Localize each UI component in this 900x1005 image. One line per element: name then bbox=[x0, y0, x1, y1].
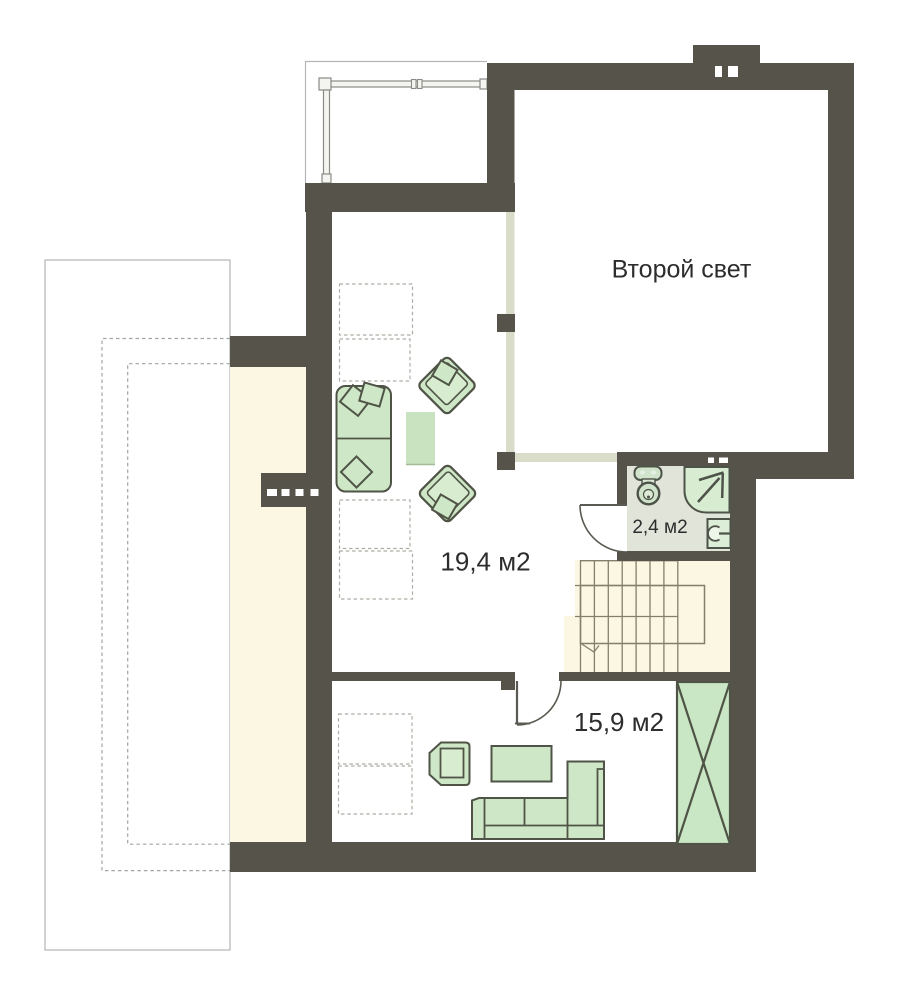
svg-text:Второй свет: Второй свет bbox=[612, 256, 752, 284]
svg-text:2,4 м2: 2,4 м2 bbox=[632, 517, 687, 538]
svg-text:15,9 м2: 15,9 м2 bbox=[574, 707, 664, 737]
svg-text:19,4 м2: 19,4 м2 bbox=[440, 547, 530, 577]
